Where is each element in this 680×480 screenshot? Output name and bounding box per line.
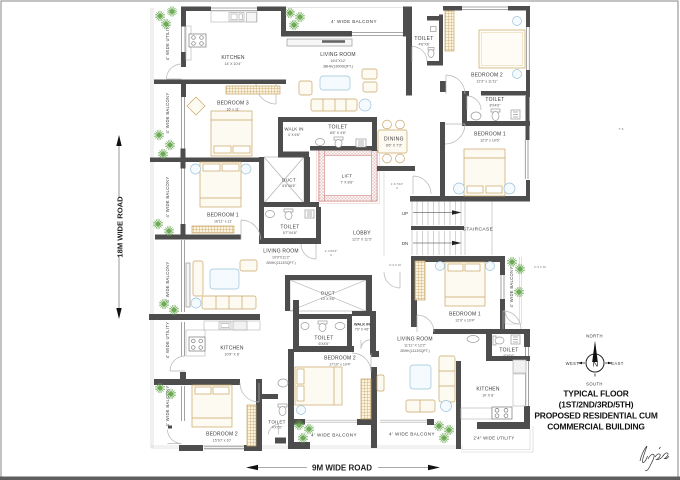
svg-text:NORTH: NORTH (586, 334, 603, 339)
svg-text:8'6" X 7'3": 8'6" X 7'3" (386, 144, 403, 148)
svg-text:4' WIDE BALCONY: 4' WIDE BALCONY (311, 433, 357, 438)
svg-text:3BHK(1600SQFT.): 3BHK(1600SQFT.) (323, 65, 353, 69)
svg-text:9M WIDE ROAD: 9M WIDE ROAD (312, 464, 372, 473)
svg-text:TOILET: TOILET (499, 348, 518, 354)
svg-text:10'9" X 8': 10'9" X 8' (224, 353, 239, 357)
svg-text:4' X 6'6": 4' X 6'6" (288, 133, 301, 137)
svg-text:TOILET: TOILET (268, 420, 285, 425)
svg-text:TOILET: TOILET (328, 125, 347, 131)
svg-text:17'10" x 10'4": 17'10" x 10'4" (329, 363, 351, 367)
svg-text:TOILET: TOILET (314, 336, 333, 342)
svg-text:14' X 10'4": 14' X 10'4" (224, 62, 242, 66)
svg-text:4' WIDE BALCONY: 4' WIDE BALCONY (165, 177, 170, 218)
svg-text:4' WIDE UTILITY: 4' WIDE UTILITY (165, 24, 170, 60)
svg-text:15'10" x 10': 15'10" x 10' (213, 439, 232, 443)
svg-text:2'-4 X 16: 2'-4 X 16 (534, 265, 546, 269)
svg-text:KITCHEN: KITCHEN (220, 346, 244, 352)
svg-text:COMMERCIAL BUILDING: COMMERCIAL BUILDING (547, 422, 645, 432)
svg-text:6'6"X6'6": 6'6"X6'6" (282, 184, 296, 188)
svg-text:4' WIDE BALCONY: 4' WIDE BALCONY (165, 386, 170, 427)
svg-text:2BHK(1113SQFT.): 2BHK(1113SQFT.) (266, 261, 295, 265)
svg-text:8'X4'6": 8'X4'6" (489, 104, 501, 108)
svg-text:DN: DN (402, 241, 408, 246)
svg-text:12'3" x 10'6": 12'3" x 10'6" (480, 139, 500, 143)
svg-text:4' WIDE BALCONY: 4' WIDE BALCONY (331, 19, 377, 24)
svg-text:BEDROOM 2: BEDROOM 2 (471, 73, 503, 79)
svg-text:SOUTH: SOUTH (586, 382, 603, 387)
svg-text:10'9"X11'2": 10'9"X11'2" (272, 256, 291, 260)
svg-text:BEDROOM 1: BEDROOM 1 (474, 132, 506, 138)
svg-text:BEDROOM 1: BEDROOM 1 (449, 312, 481, 318)
svg-text:TOILET: TOILET (414, 36, 433, 42)
svg-text:TOILET: TOILET (280, 225, 299, 231)
svg-text:WEST: WEST (566, 361, 580, 366)
svg-text:LOBBY: LOBBY (353, 231, 371, 237)
svg-text:6'X4'6": 6'X4'6" (318, 342, 330, 346)
svg-text:4' WIDE UTILITY: 4' WIDE UTILITY (165, 322, 170, 358)
svg-text:16' x 11': 16' x 11' (227, 108, 240, 112)
svg-text:4' WIDE BALCONY: 4' WIDE BALCONY (509, 267, 514, 308)
svg-text:(1ST/2ND/3RD/5TH): (1ST/2ND/3RD/5TH) (559, 400, 634, 410)
svg-text:TYPICAL FLOOR: TYPICAL FLOOR (563, 389, 628, 399)
svg-text:12'3" x 11'11": 12'3" x 11'11" (476, 80, 498, 84)
svg-text:4'X7'6": 4'X7'6" (272, 426, 283, 430)
svg-text:7'6" X 4'6": 7'6" X 4'6" (355, 328, 369, 332)
svg-text:STAIRCASE: STAIRCASE (463, 227, 493, 233)
svg-text:5'7"X4'6": 5'7"X4'6" (283, 231, 298, 235)
svg-text:EAST: EAST (611, 361, 624, 366)
svg-text:2BHK(1113SQFT.): 2BHK(1113SQFT.) (400, 349, 429, 353)
svg-text:12'9" x 10'4": 12'9" x 10'4" (455, 319, 475, 323)
svg-text:2'-3 X 16: 2'-3 X 16 (389, 263, 401, 267)
svg-text:4' WIDE BALCONY: 4' WIDE BALCONY (165, 262, 170, 303)
svg-text:WALK IN: WALK IN (354, 323, 370, 327)
svg-text:11'11" X 12'2": 11'11" X 12'2" (404, 344, 426, 348)
svg-text:UP: UP (402, 211, 408, 216)
svg-text:4' WIDE BALCONY: 4' WIDE BALCONY (165, 93, 170, 134)
svg-text:DINING: DINING (384, 137, 404, 143)
svg-text:7'-6: 7'-6 (619, 127, 624, 131)
svg-text:LIFT: LIFT (342, 174, 353, 179)
svg-text:12'3" X 11'3": 12'3" X 11'3" (352, 238, 373, 242)
svg-text:PROPOSED RESIDENTIAL CUM: PROPOSED RESIDENTIAL CUM (534, 411, 657, 421)
svg-text:KITCHEN: KITCHEN (221, 55, 245, 61)
svg-text:LIVING ROOM: LIVING ROOM (397, 337, 433, 343)
svg-text:16'4"X12': 16'4"X12' (330, 59, 345, 63)
svg-text:18M WIDE ROAD: 18M WIDE ROAD (115, 196, 124, 258)
svg-text:10' X 5'6": 10' X 5'6" (321, 297, 336, 301)
svg-text:16'11" x 11': 16'11" x 11' (214, 220, 232, 224)
svg-text:KITCHEN: KITCHEN (476, 387, 500, 393)
svg-text:2'4" WIDE UTILITY: 2'4" WIDE UTILITY (474, 436, 515, 441)
svg-text:BEDROOM 2: BEDROOM 2 (324, 356, 356, 362)
svg-text:6'X6'6": 6'X6'6" (503, 354, 515, 358)
svg-text:DUCT: DUCT (282, 178, 296, 183)
svg-text:10' X 8': 10' X 8' (482, 394, 494, 398)
svg-text:4'6"X6': 4'6"X6' (418, 43, 429, 47)
svg-text:N: N (593, 360, 598, 369)
svg-text:8'6" X 4'6": 8'6" X 4'6" (330, 131, 347, 135)
svg-text:BEDROOM 3: BEDROOM 3 (217, 101, 249, 107)
svg-text:TOILET: TOILET (485, 97, 504, 103)
svg-text:BEDROOM 1: BEDROOM 1 (207, 213, 239, 219)
svg-text:WALK IN: WALK IN (284, 127, 303, 132)
svg-text:LIVING ROOM: LIVING ROOM (263, 249, 299, 255)
svg-text:4' WIDE BALCONY: 4' WIDE BALCONY (389, 432, 435, 437)
svg-text:7' X 8'6": 7' X 8'6" (340, 181, 354, 185)
svg-text:LIVING ROOM: LIVING ROOM (320, 52, 356, 58)
svg-text:DUCT: DUCT (321, 291, 335, 296)
svg-text:BEDROOM 2: BEDROOM 2 (206, 432, 238, 438)
